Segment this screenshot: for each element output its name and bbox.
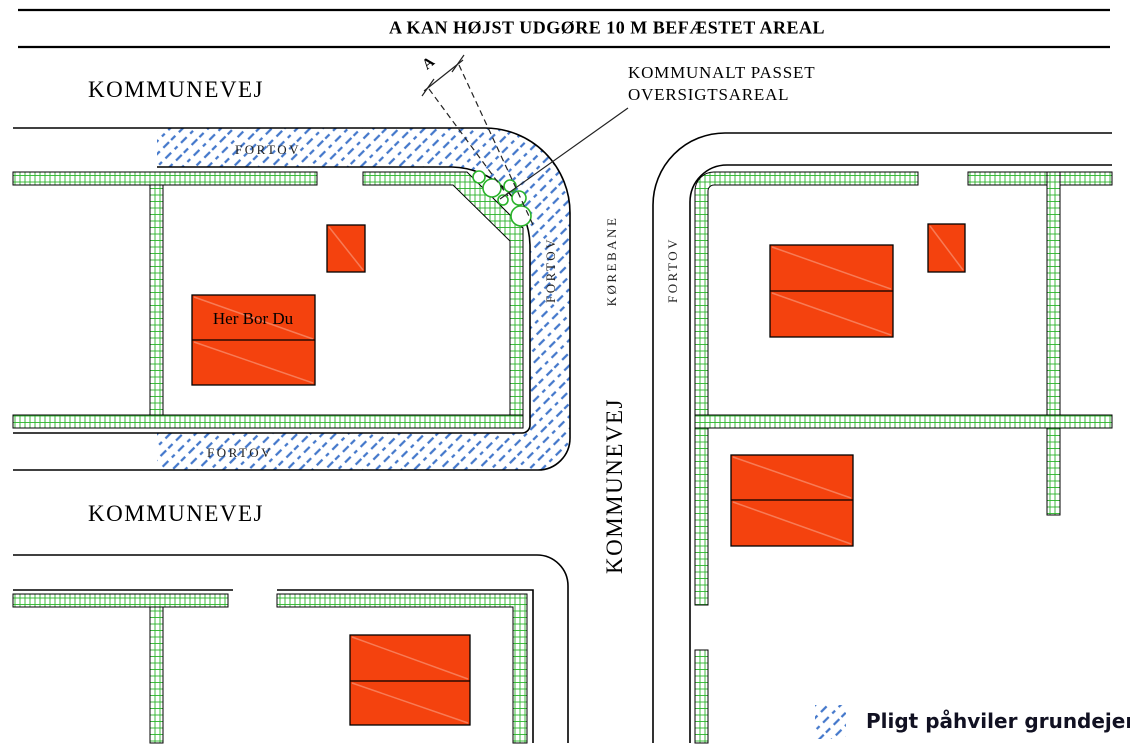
sidewalk-label-fortov-top: FORTOV (235, 142, 301, 158)
building-right-lower (731, 455, 853, 546)
hedge-top-left (13, 172, 317, 185)
tree-icon (512, 191, 526, 205)
carriageway-label: KØREBANE (604, 216, 620, 307)
hedge-corner-parcel-east (363, 172, 523, 428)
hedge-right-parcel-mid (695, 415, 1112, 428)
corner-note: KOMMUNALT PASSET OVERSIGTSAREAL (628, 62, 815, 106)
hedge-right-parcel-north-b (968, 172, 1112, 185)
hedge-right-parcel-divider (1047, 172, 1060, 515)
corner-note-line1: KOMMUNALT PASSET (628, 62, 815, 84)
buildings (192, 224, 965, 725)
sidewalk-label-fortov-vertical-west: FORTOV (543, 237, 559, 303)
site-plan: A KAN HØJST UDGØRE 10 M BEFÆSTET AREAL K… (0, 0, 1130, 756)
corner-note-line2: OVERSIGTSAREAL (628, 84, 815, 106)
hedge-left-divider (150, 185, 163, 428)
road-label-kommunevej-top: KOMMUNEVEJ (88, 77, 264, 103)
building-garage-right (928, 224, 965, 272)
plan-title: A KAN HØJST UDGØRE 10 M BEFÆSTET AREAL (389, 18, 825, 39)
hedge-right-parcel-west-lower (695, 650, 708, 743)
house-label: Her Bor Du (213, 309, 293, 329)
building-garage-topleft (327, 225, 365, 272)
tree-icon (504, 180, 516, 192)
hedge-lowerleft-a (13, 594, 228, 607)
legend-hatch-swatch (815, 705, 846, 739)
hedge-lowerleft-divider (150, 607, 163, 743)
sidewalk-label-fortov-vertical-east: FORTOV (665, 237, 681, 303)
hedge-corner-parcel-south (13, 415, 523, 428)
road-label-kommunevej-vertical: KOMMUNEVEJ (602, 398, 628, 574)
building-bottom-left (350, 635, 470, 725)
tree-icon (511, 206, 531, 226)
sidewalk-label-fortov-bottom: FORTOV (207, 445, 273, 461)
road-label-kommunevej-lower: KOMMUNEVEJ (88, 501, 264, 527)
building-right-upper (770, 245, 893, 337)
legend-label: Pligt påhviler grundejer (866, 709, 1130, 733)
tree-icon (473, 171, 485, 183)
site-plan-drawing (0, 0, 1130, 756)
tree-icon (483, 179, 501, 197)
